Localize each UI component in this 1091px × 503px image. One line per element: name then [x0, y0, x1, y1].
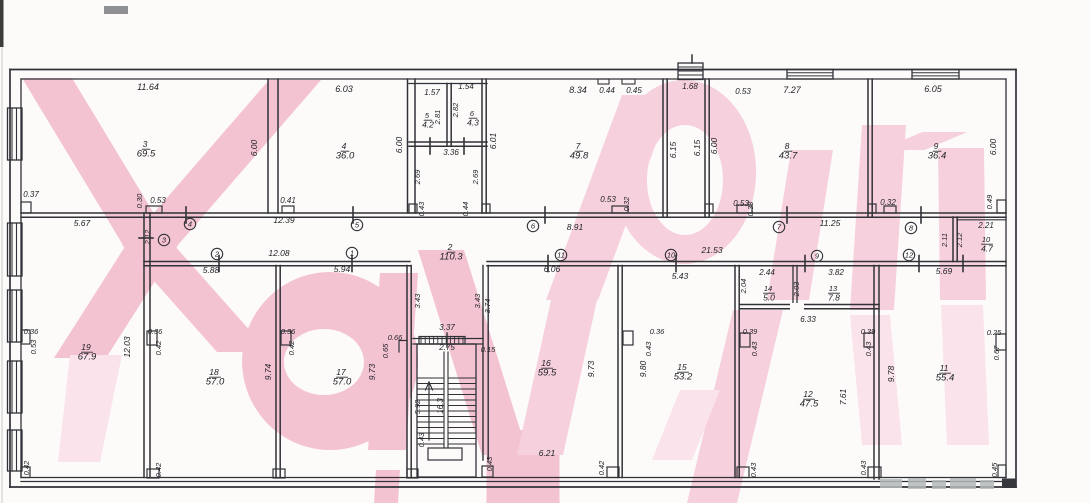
svg-text:6.15: 6.15	[692, 139, 702, 156]
svg-text:0.42: 0.42	[22, 460, 31, 475]
svg-text:2.81: 2.81	[433, 110, 442, 126]
svg-text:0.43: 0.43	[749, 462, 758, 477]
svg-text:3.43: 3.43	[413, 293, 422, 308]
svg-text:69.5: 69.5	[137, 149, 156, 160]
svg-text:36.0: 36.0	[336, 151, 355, 162]
svg-text:47.5: 47.5	[800, 399, 819, 410]
svg-text:7: 7	[576, 141, 581, 151]
svg-text:5.43: 5.43	[672, 271, 689, 281]
svg-text:3.74: 3.74	[483, 299, 492, 314]
svg-text:0.33: 0.33	[746, 201, 755, 216]
svg-text:0.43: 0.43	[485, 456, 494, 471]
svg-text:1.54: 1.54	[458, 82, 474, 91]
svg-text:0.36: 0.36	[148, 327, 163, 336]
svg-text:11.25: 11.25	[820, 218, 841, 228]
svg-text:12.03: 12.03	[122, 336, 132, 358]
svg-text:0.42: 0.42	[154, 340, 163, 355]
svg-text:0.25: 0.25	[987, 328, 1002, 337]
svg-text:57.0: 57.0	[206, 377, 225, 388]
svg-text:2.69: 2.69	[471, 169, 480, 185]
svg-text:0.44: 0.44	[461, 202, 470, 217]
svg-text:3.82: 3.82	[828, 268, 844, 277]
svg-text:0.42: 0.42	[597, 460, 606, 475]
svg-text:15: 15	[677, 362, 687, 372]
svg-text:2.75: 2.75	[438, 343, 455, 352]
svg-text:8: 8	[785, 141, 790, 151]
svg-text:9: 9	[934, 141, 939, 151]
svg-text:0.53: 0.53	[29, 339, 38, 354]
svg-text:0.67: 0.67	[992, 345, 1001, 360]
svg-text:6.21: 6.21	[539, 448, 556, 458]
svg-text:0.32: 0.32	[622, 196, 631, 211]
svg-text:12.08: 12.08	[268, 248, 290, 258]
svg-text:7.61: 7.61	[838, 388, 848, 405]
svg-text:6.00: 6.00	[988, 138, 998, 155]
svg-text:2.44: 2.44	[758, 268, 775, 277]
svg-text:2.21: 2.21	[977, 221, 994, 230]
svg-text:4: 4	[188, 220, 192, 229]
svg-text:6.00: 6.00	[709, 137, 719, 154]
svg-text:4.3: 4.3	[467, 118, 479, 128]
svg-text:0.43: 0.43	[750, 341, 759, 356]
svg-text:10: 10	[667, 251, 676, 260]
svg-text:67.9: 67.9	[78, 352, 97, 363]
svg-text:0.39: 0.39	[743, 327, 758, 336]
svg-text:0.43: 0.43	[864, 341, 873, 356]
svg-text:6.03: 6.03	[335, 84, 353, 94]
svg-text:2.04: 2.04	[739, 279, 748, 295]
svg-text:110.3: 110.3	[439, 252, 463, 263]
svg-text:5.0: 5.0	[763, 293, 775, 303]
svg-text:0.42: 0.42	[154, 462, 163, 477]
svg-text:1.68: 1.68	[682, 82, 698, 91]
svg-text:2: 2	[447, 242, 453, 252]
svg-text:2.03: 2.03	[792, 281, 801, 297]
svg-text:2.69: 2.69	[413, 169, 422, 185]
svg-text:0.45: 0.45	[990, 462, 999, 477]
svg-text:5.94: 5.94	[334, 264, 351, 274]
svg-text:3: 3	[143, 139, 148, 149]
svg-text:16: 16	[541, 358, 551, 368]
svg-text:6.05: 6.05	[924, 84, 943, 94]
svg-text:4: 4	[342, 141, 347, 151]
svg-text:6.00: 6.00	[249, 139, 259, 156]
svg-text:2.11: 2.11	[940, 233, 949, 248]
svg-text:0.41: 0.41	[280, 196, 296, 205]
svg-text:4.7: 4.7	[981, 244, 993, 254]
svg-text:0.43: 0.43	[859, 460, 868, 475]
svg-text:7.27: 7.27	[783, 85, 802, 95]
svg-text:12.39: 12.39	[273, 215, 295, 225]
svg-text:0.36: 0.36	[650, 327, 665, 336]
svg-text:3.37: 3.37	[439, 323, 455, 332]
svg-text:1: 1	[350, 249, 354, 258]
svg-text:8.34: 8.34	[569, 85, 587, 95]
svg-text:59.5: 59.5	[538, 368, 557, 379]
svg-text:9.78: 9.78	[886, 365, 896, 382]
svg-text:0.65: 0.65	[381, 343, 390, 358]
svg-text:0.32: 0.32	[880, 198, 896, 207]
svg-text:11.64: 11.64	[137, 82, 159, 92]
svg-text:36.4: 36.4	[928, 151, 947, 162]
svg-text:2.12: 2.12	[143, 229, 152, 245]
svg-text:0.15: 0.15	[481, 345, 496, 354]
svg-text:5.88: 5.88	[203, 265, 220, 275]
svg-text:9.73: 9.73	[367, 363, 377, 380]
svg-text:0.42: 0.42	[287, 340, 296, 355]
svg-text:6.15: 6.15	[668, 141, 678, 158]
svg-text:5.69: 5.69	[936, 266, 953, 276]
svg-text:9.73: 9.73	[586, 360, 596, 377]
svg-text:6.01: 6.01	[488, 132, 498, 149]
svg-text:57.0: 57.0	[333, 377, 352, 388]
svg-text:2: 2	[214, 250, 220, 259]
svg-text:7.8: 7.8	[828, 293, 840, 303]
svg-text:16.3: 16.3	[436, 398, 445, 414]
svg-text:11: 11	[940, 363, 949, 373]
svg-text:6.06: 6.06	[544, 264, 561, 274]
svg-text:0.66: 0.66	[388, 333, 403, 342]
svg-text:6.33: 6.33	[800, 315, 816, 324]
svg-text:11: 11	[557, 251, 565, 260]
svg-text:2.12: 2.12	[955, 232, 964, 248]
svg-text:0.43: 0.43	[417, 432, 426, 447]
svg-text:1.57: 1.57	[424, 88, 440, 97]
svg-text:2.82: 2.82	[451, 102, 460, 118]
svg-text:12: 12	[803, 389, 813, 399]
svg-text:0.43: 0.43	[417, 201, 426, 216]
svg-text:55.4: 55.4	[936, 373, 955, 384]
svg-text:5.92: 5.92	[413, 399, 422, 414]
svg-text:6.00: 6.00	[394, 136, 404, 153]
svg-text:0.39: 0.39	[861, 327, 876, 336]
svg-text:49.8: 49.8	[570, 151, 589, 162]
svg-text:0.36: 0.36	[24, 327, 39, 336]
svg-text:0.53: 0.53	[600, 195, 616, 204]
svg-text:0.43: 0.43	[644, 341, 653, 356]
svg-text:0.37: 0.37	[23, 190, 39, 199]
svg-text:0.44: 0.44	[599, 86, 615, 95]
svg-text:3.36: 3.36	[443, 148, 459, 157]
svg-text:17: 17	[336, 367, 346, 377]
svg-text:53.2: 53.2	[674, 372, 693, 383]
svg-text:21.53: 21.53	[700, 245, 723, 255]
svg-text:43.7: 43.7	[779, 151, 798, 162]
svg-text:0.53: 0.53	[735, 87, 751, 96]
svg-text:19: 19	[81, 342, 91, 352]
svg-text:3.43: 3.43	[473, 293, 482, 308]
svg-text:0.30: 0.30	[135, 193, 144, 208]
svg-text:0.36: 0.36	[281, 327, 296, 336]
svg-text:0.53: 0.53	[150, 196, 166, 205]
svg-text:0.49: 0.49	[985, 194, 994, 209]
svg-text:18: 18	[209, 367, 219, 377]
svg-text:12: 12	[905, 251, 914, 260]
svg-text:0.45: 0.45	[626, 86, 642, 95]
svg-text:8.91: 8.91	[567, 222, 584, 232]
svg-text:5.67: 5.67	[74, 218, 91, 228]
svg-text:9.74: 9.74	[263, 363, 273, 380]
svg-text:9.80: 9.80	[638, 360, 648, 377]
